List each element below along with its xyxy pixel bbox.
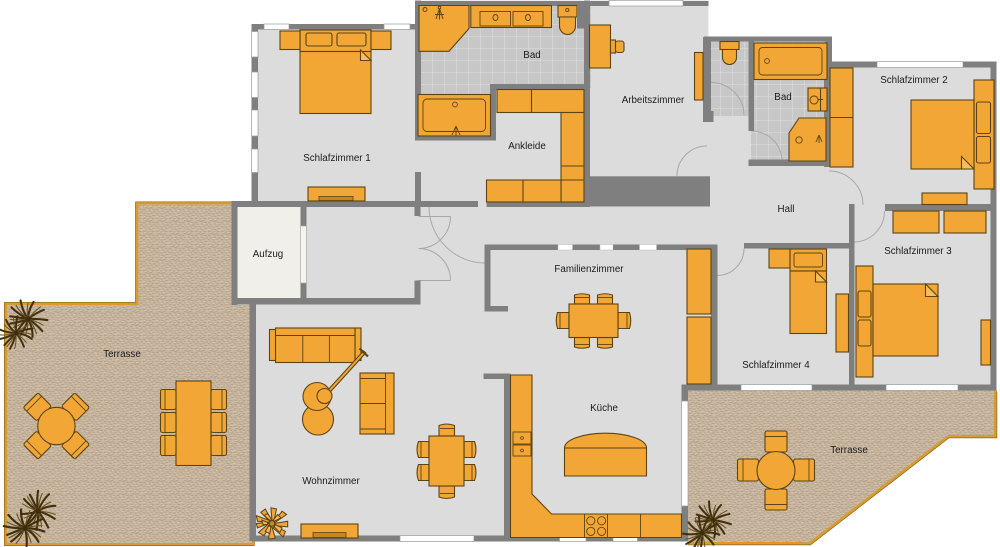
svg-text:Arbeitszimmer: Arbeitszimmer: [622, 95, 685, 106]
svg-text:Bad: Bad: [523, 50, 540, 61]
svg-text:Familienzimmer: Familienzimmer: [554, 264, 624, 275]
svg-text:Terrasse: Terrasse: [103, 349, 141, 360]
svg-text:Schlafzimmer 4: Schlafzimmer 4: [742, 360, 810, 371]
svg-text:Schlafzimmer 2: Schlafzimmer 2: [880, 75, 948, 86]
svg-text:Terrasse: Terrasse: [830, 445, 868, 456]
svg-text:Küche: Küche: [590, 403, 618, 414]
svg-text:Aufzug: Aufzug: [253, 249, 284, 260]
svg-text:Ankleide: Ankleide: [508, 141, 546, 152]
svg-text:Schlafzimmer 3: Schlafzimmer 3: [884, 246, 952, 257]
svg-text:Bad: Bad: [774, 92, 791, 103]
svg-text:Hall: Hall: [778, 204, 795, 215]
svg-text:Wohnzimmer: Wohnzimmer: [302, 476, 360, 487]
svg-text:Schlafzimmer 1: Schlafzimmer 1: [303, 153, 371, 164]
